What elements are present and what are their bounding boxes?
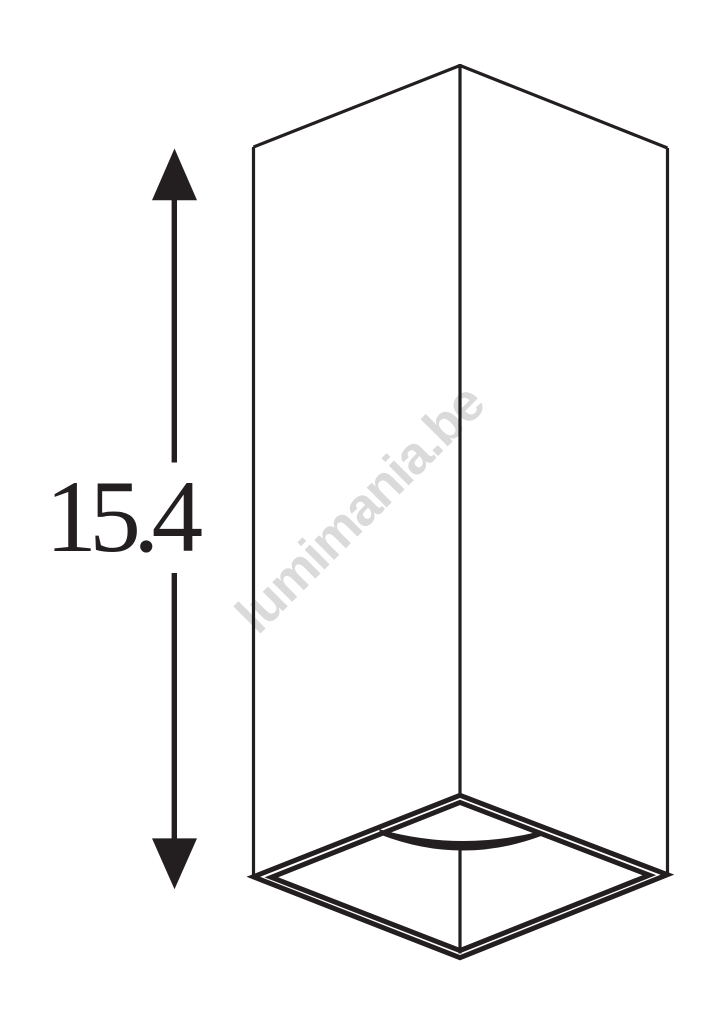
svg-text:15.4: 15.4 [45, 460, 201, 574]
